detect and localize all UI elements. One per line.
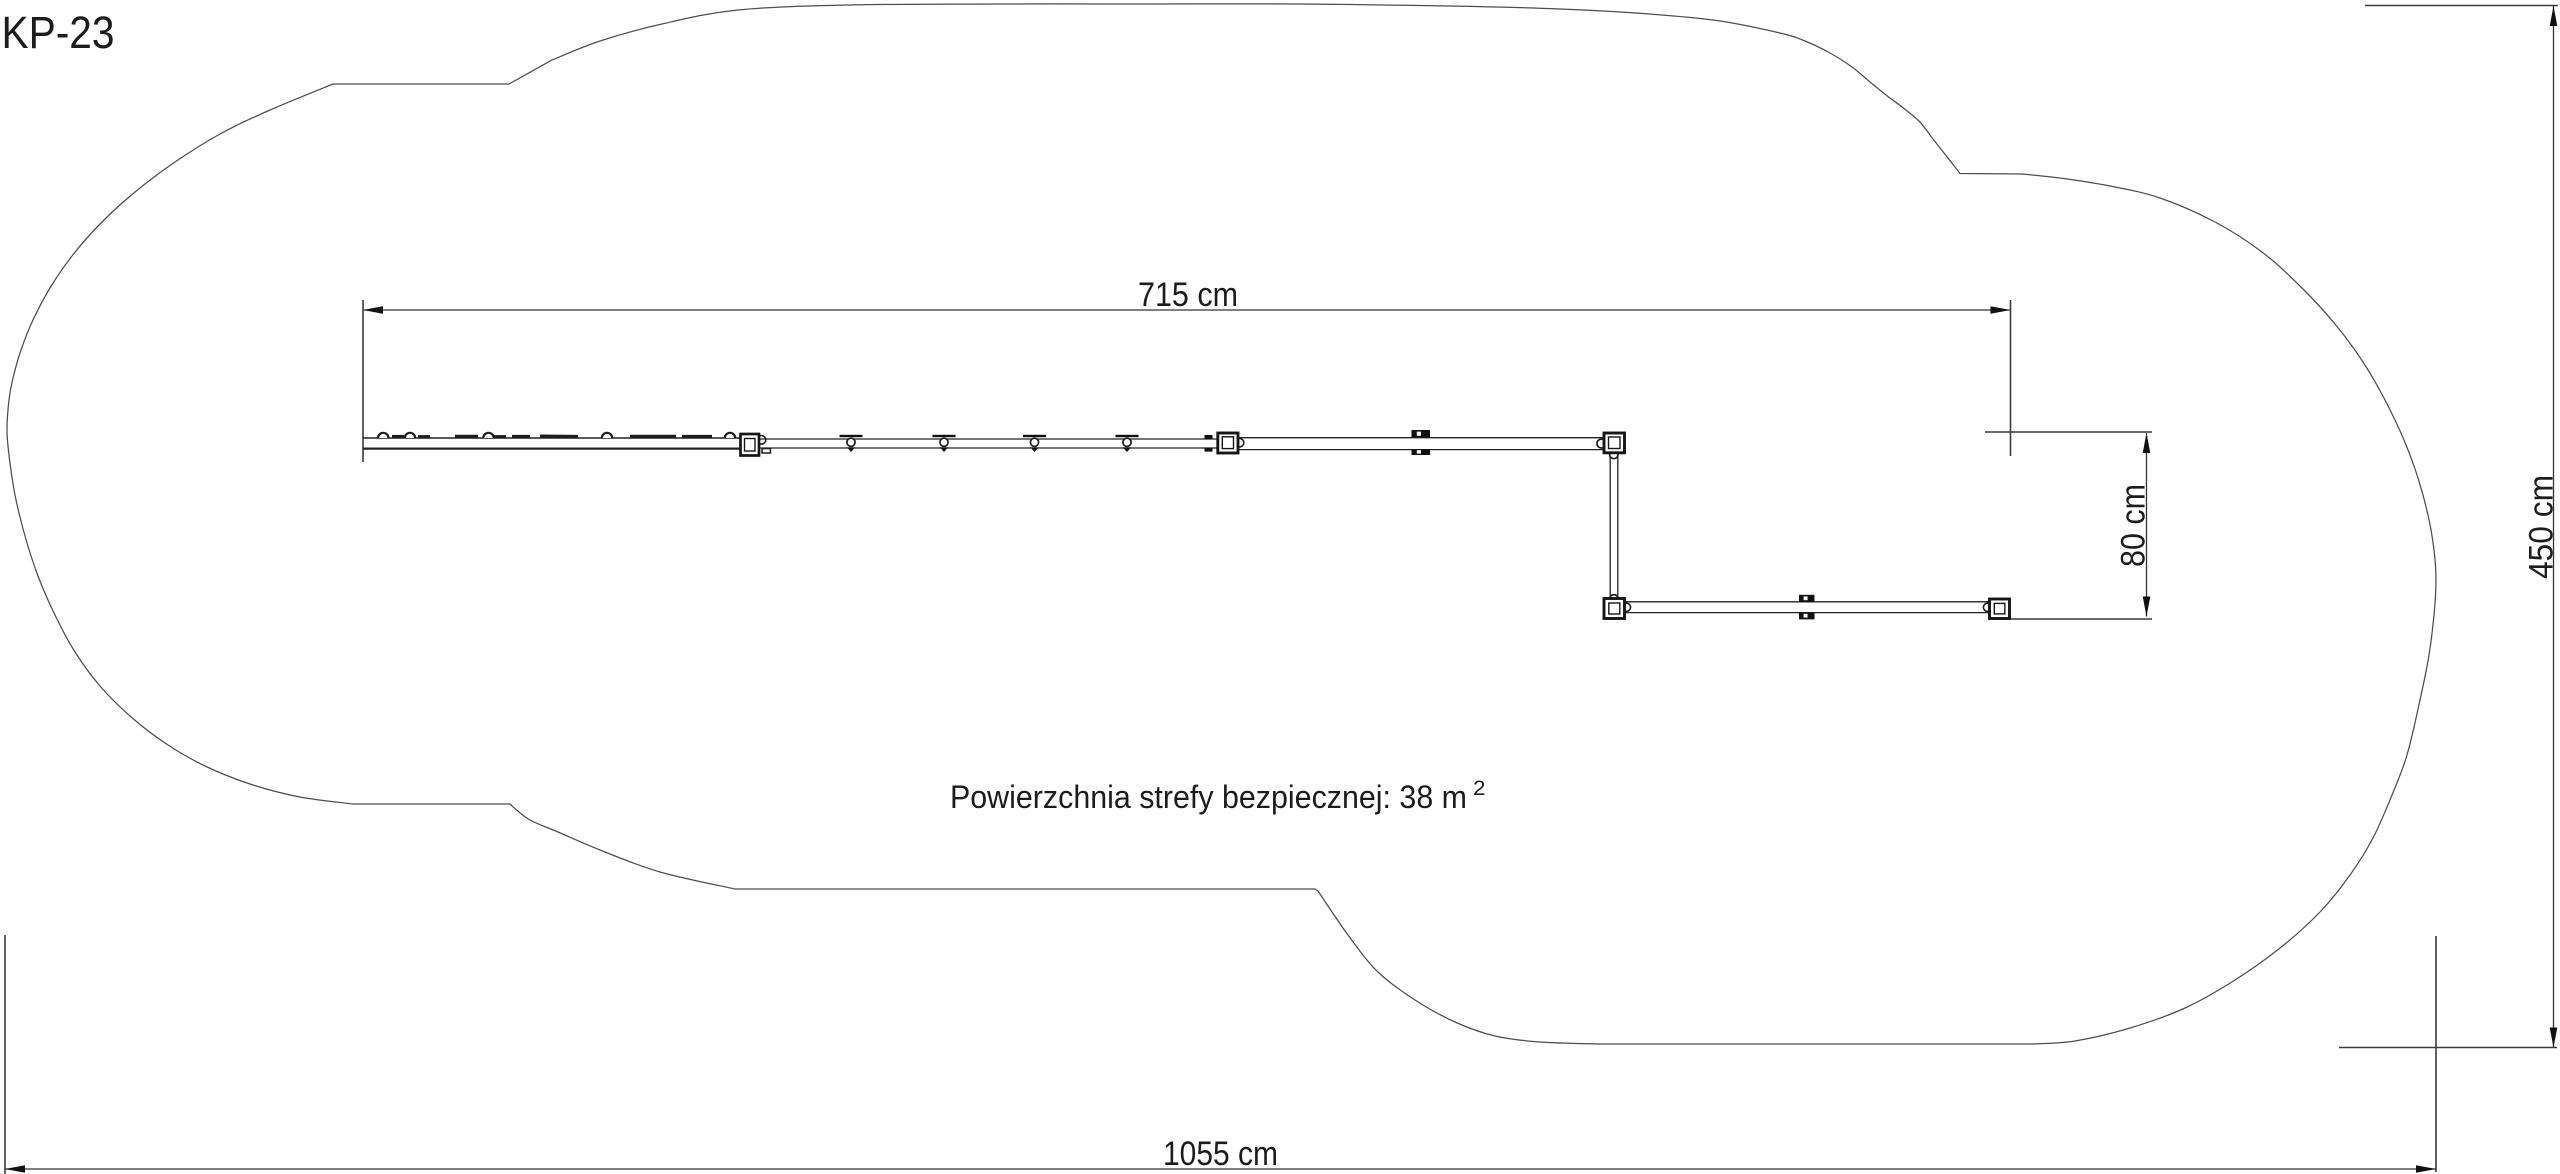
svg-text:Powierzchnia strefy bezpieczne: Powierzchnia strefy bezpiecznej: 38 m bbox=[950, 779, 1467, 815]
svg-text:80 cm: 80 cm bbox=[2115, 484, 2153, 567]
svg-text:2: 2 bbox=[1473, 777, 1486, 800]
svg-text:715 cm: 715 cm bbox=[1138, 276, 1238, 314]
svg-text:1055 cm: 1055 cm bbox=[1163, 1135, 1278, 1173]
svg-text:450 cm: 450 cm bbox=[2522, 475, 2560, 579]
svg-text:KP-23: KP-23 bbox=[2, 7, 115, 58]
